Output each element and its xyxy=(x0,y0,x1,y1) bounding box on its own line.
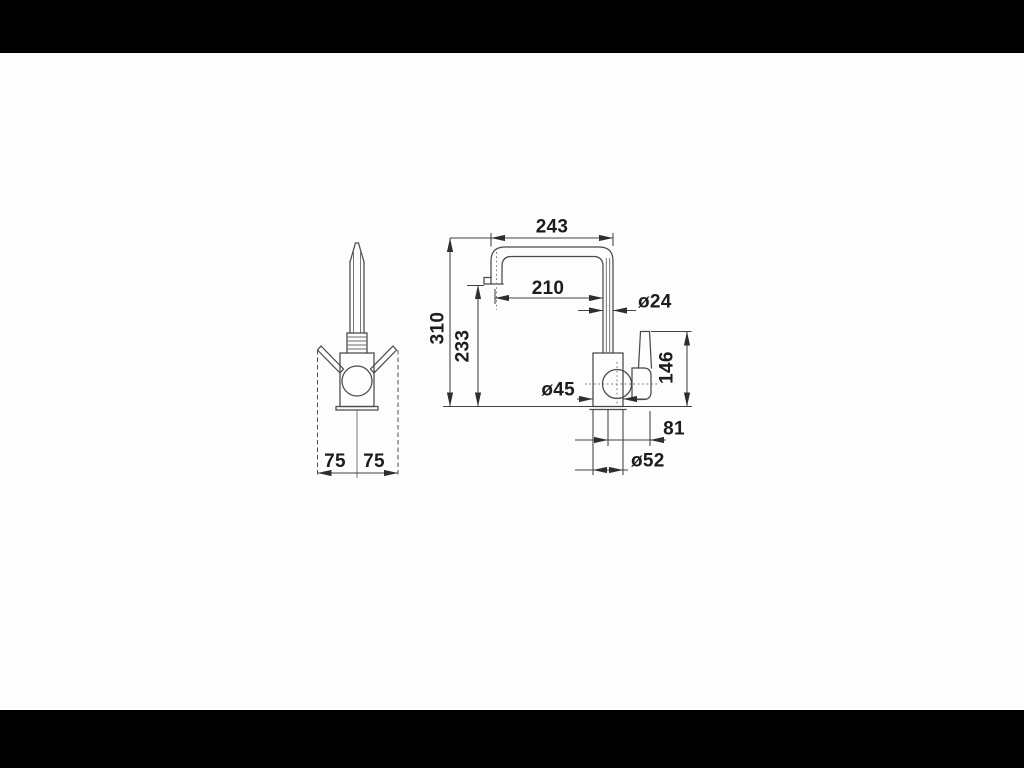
dim-label-height-overall: 310 xyxy=(428,312,449,345)
front-spout-pipe xyxy=(347,243,367,353)
letterbox-bottom-bar xyxy=(0,710,1024,768)
dim-label-swing-left: 75 xyxy=(324,451,346,472)
side-dim-spout-reach-overall: 243 xyxy=(450,217,613,247)
side-dim-base-diameter: ø52 xyxy=(575,409,665,475)
screenshot-stage: 75 75 xyxy=(0,0,1024,768)
dim-label-height-outlet: 233 xyxy=(453,330,474,363)
dim-label-body-diameter: ø45 xyxy=(541,380,575,401)
dim-label-handle-offset: 81 xyxy=(663,419,685,440)
side-dim-spout-tube-diameter: ø24 xyxy=(578,292,672,314)
front-dim-swing-75-75: 75 75 xyxy=(318,451,399,476)
side-view: 243 310 233 210 xyxy=(428,217,693,476)
side-dim-handle-top-height: 146 xyxy=(651,332,692,407)
dim-label-handle-top-height: 146 xyxy=(657,351,678,384)
side-dim-handle-offset: 81 xyxy=(575,409,685,446)
side-body-and-handle xyxy=(585,332,658,410)
front-view: 75 75 xyxy=(318,243,399,478)
dim-label-spout-reach-outlet: 210 xyxy=(532,278,565,299)
side-dim-spout-reach-outlet: 210 xyxy=(495,278,603,304)
letterbox-top-bar xyxy=(0,0,1024,53)
dim-label-swing-right: 75 xyxy=(363,451,385,472)
faucet-dimension-drawing: 75 75 xyxy=(0,0,1024,768)
side-dim-height-overall: 310 xyxy=(428,238,454,407)
dim-label-spout-tube-diameter: ø24 xyxy=(638,292,672,313)
dim-label-spout-reach-overall: 243 xyxy=(536,217,569,238)
side-dim-height-outlet: 233 xyxy=(453,285,485,407)
dim-label-base-diameter: ø52 xyxy=(631,451,665,472)
